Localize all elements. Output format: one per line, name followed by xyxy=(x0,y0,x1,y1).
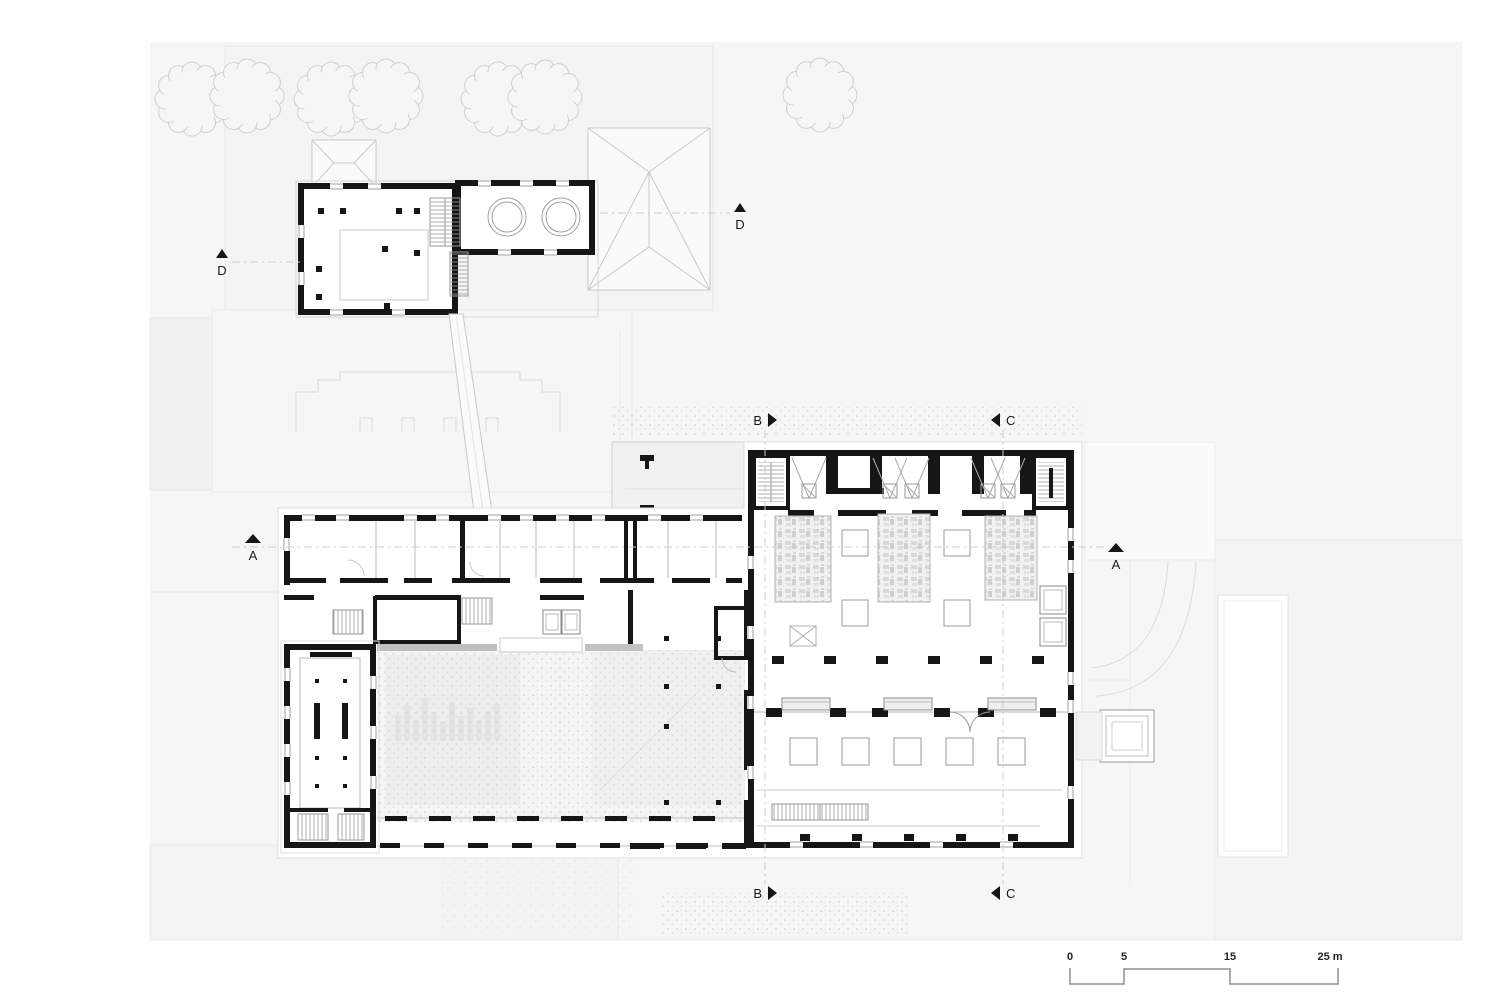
section-label: A xyxy=(1112,557,1121,572)
scale-tick-5: 5 xyxy=(1121,951,1127,963)
section-label: D xyxy=(735,217,744,232)
pool xyxy=(1218,595,1288,857)
scale-tick-15: 15 xyxy=(1224,951,1236,963)
scale-tick-25: 25 m xyxy=(1317,951,1342,963)
courtyard xyxy=(377,650,748,848)
hall-stair-left xyxy=(754,456,788,508)
floor-plan-page: D D A A B C B C 0 5 15 25 m xyxy=(0,0,1500,1000)
floor-plan-canvas: D D A A B C B C 0 5 15 25 m xyxy=(0,0,1500,1000)
benches xyxy=(782,698,1036,710)
main-roof-large xyxy=(588,128,710,290)
scale-bar: 0 5 15 25 m xyxy=(1067,951,1343,984)
section-label: B xyxy=(753,413,762,428)
floor-grille xyxy=(772,804,868,820)
section-label: B xyxy=(753,886,762,901)
section-label: A xyxy=(249,548,258,563)
section-label: C xyxy=(1006,413,1015,428)
annex-roof-small xyxy=(312,140,376,187)
section-label: C xyxy=(1006,886,1015,901)
scale-tick-0: 0 xyxy=(1067,951,1073,963)
entrance-porch xyxy=(1076,710,1154,762)
section-label: D xyxy=(217,263,226,278)
machine-exhibits xyxy=(775,514,1037,602)
tall-hall xyxy=(281,641,379,853)
hall-stair-right xyxy=(1034,456,1068,508)
